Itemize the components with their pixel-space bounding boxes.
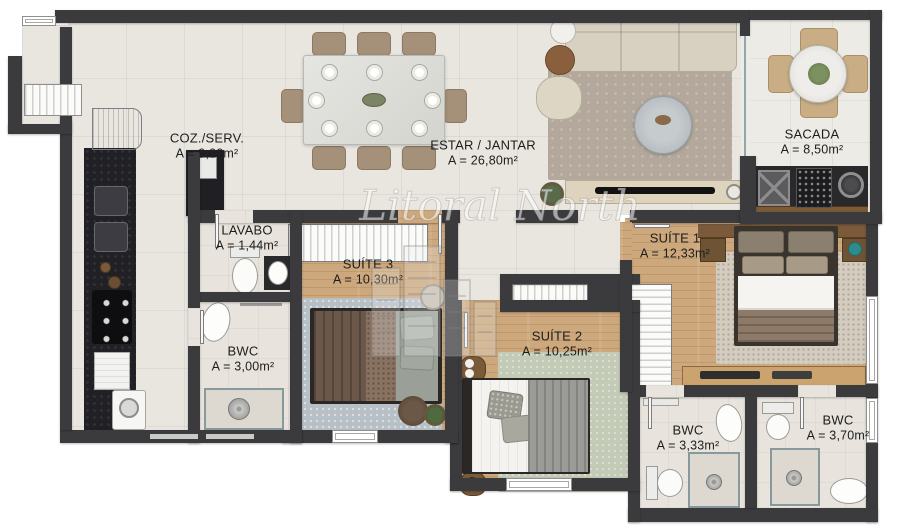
room-label-kitchen: COZ./SERV. A = 9,00m² xyxy=(170,131,244,160)
wall-bwc-divider xyxy=(745,395,757,508)
bwc3-sink xyxy=(830,478,868,504)
room-name: BWC xyxy=(212,344,275,359)
wall-suite3-left xyxy=(290,210,302,443)
dining-chair xyxy=(357,146,391,170)
window-suite2 xyxy=(506,478,572,491)
suite2-bed-blanket xyxy=(528,380,588,472)
bwc1-door-leaf xyxy=(200,310,204,344)
room-label-bwc1: BWC A = 3,00m² xyxy=(212,344,275,373)
room-area: A = 12,33m² xyxy=(640,246,710,260)
wall-top xyxy=(55,10,750,23)
bwc2-toilet-bowl xyxy=(657,469,683,497)
utensil-jar-2 xyxy=(108,276,121,289)
window-suite1 xyxy=(866,296,878,384)
room-area: A = 8,50m² xyxy=(781,142,844,156)
place-setting xyxy=(411,120,428,137)
table-centerpiece xyxy=(362,93,386,107)
suite1-bed-sheet xyxy=(738,276,834,310)
suite1-dresser-decor xyxy=(772,371,812,379)
suite2-nightstand-decor xyxy=(465,369,474,378)
suite1-dresser-decor xyxy=(700,371,760,379)
side-table xyxy=(545,45,575,75)
bwc3-door-opening xyxy=(798,385,836,397)
wall-nook-bottom xyxy=(8,124,72,134)
suite3-door-leaf xyxy=(438,214,442,254)
dishwasher xyxy=(94,352,130,390)
suite3-pillow xyxy=(399,345,434,371)
suite3-door-opening xyxy=(398,210,442,223)
washing-machine-drum xyxy=(119,398,139,418)
wall-balcony-bottom xyxy=(740,212,882,224)
kitchen-sink-2 xyxy=(94,222,128,252)
bwc1-door-opening xyxy=(188,308,200,346)
bwc2-door-opening xyxy=(646,385,684,397)
suite1-door-opening xyxy=(620,222,632,260)
suite3-bed-throw xyxy=(314,311,366,401)
window-entry xyxy=(22,16,56,26)
suite1-bed-blanket xyxy=(738,310,834,342)
room-name: LAVABO xyxy=(216,223,279,238)
window-suite3 xyxy=(332,430,378,443)
room-label-suite1: SUÍTE 1 A = 12,33m² xyxy=(640,231,710,260)
suite1-pillow xyxy=(738,231,784,253)
room-label-suite3: SUÍTE 3 A = 10,30m² xyxy=(333,257,403,286)
suite1-nightstand-decor xyxy=(848,242,862,256)
room-label-bwc3: BWC A = 3,70m² xyxy=(807,413,870,442)
room-label-suite2: SUÍTE 2 A = 10,25m² xyxy=(522,329,592,358)
wall-hall-top xyxy=(516,210,578,223)
kitchen-threshold xyxy=(206,434,254,439)
place-setting xyxy=(366,120,383,137)
dining-chair xyxy=(281,89,305,123)
wall-suite1-left xyxy=(620,260,632,392)
room-label-balcony: SACADA A = 8,50m² xyxy=(781,127,844,156)
room-area: A = 10,25m² xyxy=(522,344,592,358)
balcony-slider-glass xyxy=(744,36,746,156)
plant-pot xyxy=(540,182,564,206)
room-name: BWC xyxy=(657,423,720,438)
dining-chair xyxy=(443,89,467,123)
room-label-bwc2: BWC A = 3,33m² xyxy=(657,423,720,452)
bwc2-shower-head xyxy=(706,474,722,490)
suite1-pillow xyxy=(742,256,784,274)
pouf xyxy=(536,76,582,120)
kitchen-sink-1 xyxy=(94,186,128,216)
room-area: A = 10,30m² xyxy=(333,272,403,286)
bbq-hatch xyxy=(758,170,790,206)
wall-left-lower xyxy=(60,120,72,430)
ceiling-fan xyxy=(420,284,446,310)
bwc3-door-leaf xyxy=(800,397,804,429)
wall-balcony-right xyxy=(870,10,882,222)
place-setting xyxy=(321,64,338,81)
tv xyxy=(595,187,715,194)
room-name: COZ./SERV. xyxy=(170,131,244,146)
bbq-grate xyxy=(796,168,832,208)
wall-suite2-top xyxy=(500,300,640,312)
room-label-lavabo: LAVABO A = 1,44m² xyxy=(216,223,279,252)
wall-suite1-top xyxy=(630,210,750,223)
bwc2-door-leaf xyxy=(648,397,652,429)
wall-kitchen-corridor xyxy=(188,152,200,443)
room-name: SUÍTE 1 xyxy=(640,231,710,246)
place-setting xyxy=(366,64,383,81)
hall-corridor-floor xyxy=(458,274,502,302)
coffee-table-decor xyxy=(655,115,671,125)
room-area: A = 3,00m² xyxy=(212,359,275,373)
wall-bottom-right xyxy=(628,508,878,522)
wall-suite3-right xyxy=(445,210,458,443)
utensil-jar-1 xyxy=(100,262,111,273)
wall-nook-outer xyxy=(8,56,22,132)
dining-chair xyxy=(312,32,346,56)
window-nook xyxy=(24,84,82,116)
room-name: ESTAR / JANTAR xyxy=(430,138,536,153)
suite3-bed-runner xyxy=(366,311,396,401)
place-setting xyxy=(411,64,428,81)
place-setting xyxy=(321,120,338,137)
suite1-pillow xyxy=(788,231,834,253)
bwc3-toilet-tank xyxy=(762,402,794,414)
cooktop xyxy=(92,290,132,344)
suite2-door-opening xyxy=(462,300,500,312)
place-setting xyxy=(424,92,441,109)
room-area: A = 3,33m² xyxy=(657,438,720,452)
bwc1-towel-bar xyxy=(240,303,282,306)
wall-niche-top xyxy=(500,274,640,284)
round-grill xyxy=(838,172,864,198)
kitchen-threshold xyxy=(150,434,198,439)
floor-plan: COZ./SERV. A = 9,00m² ESTAR / JANTAR A =… xyxy=(0,0,900,529)
dining-chair xyxy=(357,32,391,56)
lavabo-door-opening xyxy=(215,210,253,223)
room-label-living: ESTAR / JANTAR A = 26,80m² xyxy=(430,138,536,167)
dining-chair xyxy=(312,146,346,170)
place-setting xyxy=(308,92,325,109)
balcony-plant xyxy=(808,63,830,85)
bwc3-shower-head xyxy=(786,470,802,486)
wall-lavabo-bwc xyxy=(200,292,290,302)
suite3-pillow xyxy=(399,315,435,341)
suite1-door-leaf xyxy=(634,224,670,228)
coffee-table xyxy=(634,96,692,154)
room-name: SUÍTE 3 xyxy=(333,257,403,272)
lavabo-toilet-bowl xyxy=(232,258,258,294)
lavabo-sink xyxy=(268,261,288,285)
suite2-door-leaf xyxy=(464,312,468,348)
wall-balcony-left-top xyxy=(740,23,750,36)
room-name: SACADA xyxy=(781,127,844,142)
room-area: A = 3,70m² xyxy=(807,428,870,442)
dining-chair xyxy=(402,32,436,56)
refrigerator xyxy=(92,108,142,150)
sofa xyxy=(565,16,737,72)
suite3-plant xyxy=(424,404,446,426)
wall-balcony-top xyxy=(750,10,882,20)
bwc3-toilet-bowl xyxy=(766,414,790,440)
room-area: A = 26,80m² xyxy=(430,153,536,167)
room-name: SUÍTE 2 xyxy=(522,329,592,344)
bwc1-shower-head xyxy=(228,398,250,420)
suite2-nightstand-decor xyxy=(465,359,474,368)
room-name: BWC xyxy=(807,413,870,428)
room-area: A = 1,44m² xyxy=(216,238,279,252)
room-area: A = 9,00m² xyxy=(170,146,244,160)
suite1-pillow xyxy=(786,256,828,274)
